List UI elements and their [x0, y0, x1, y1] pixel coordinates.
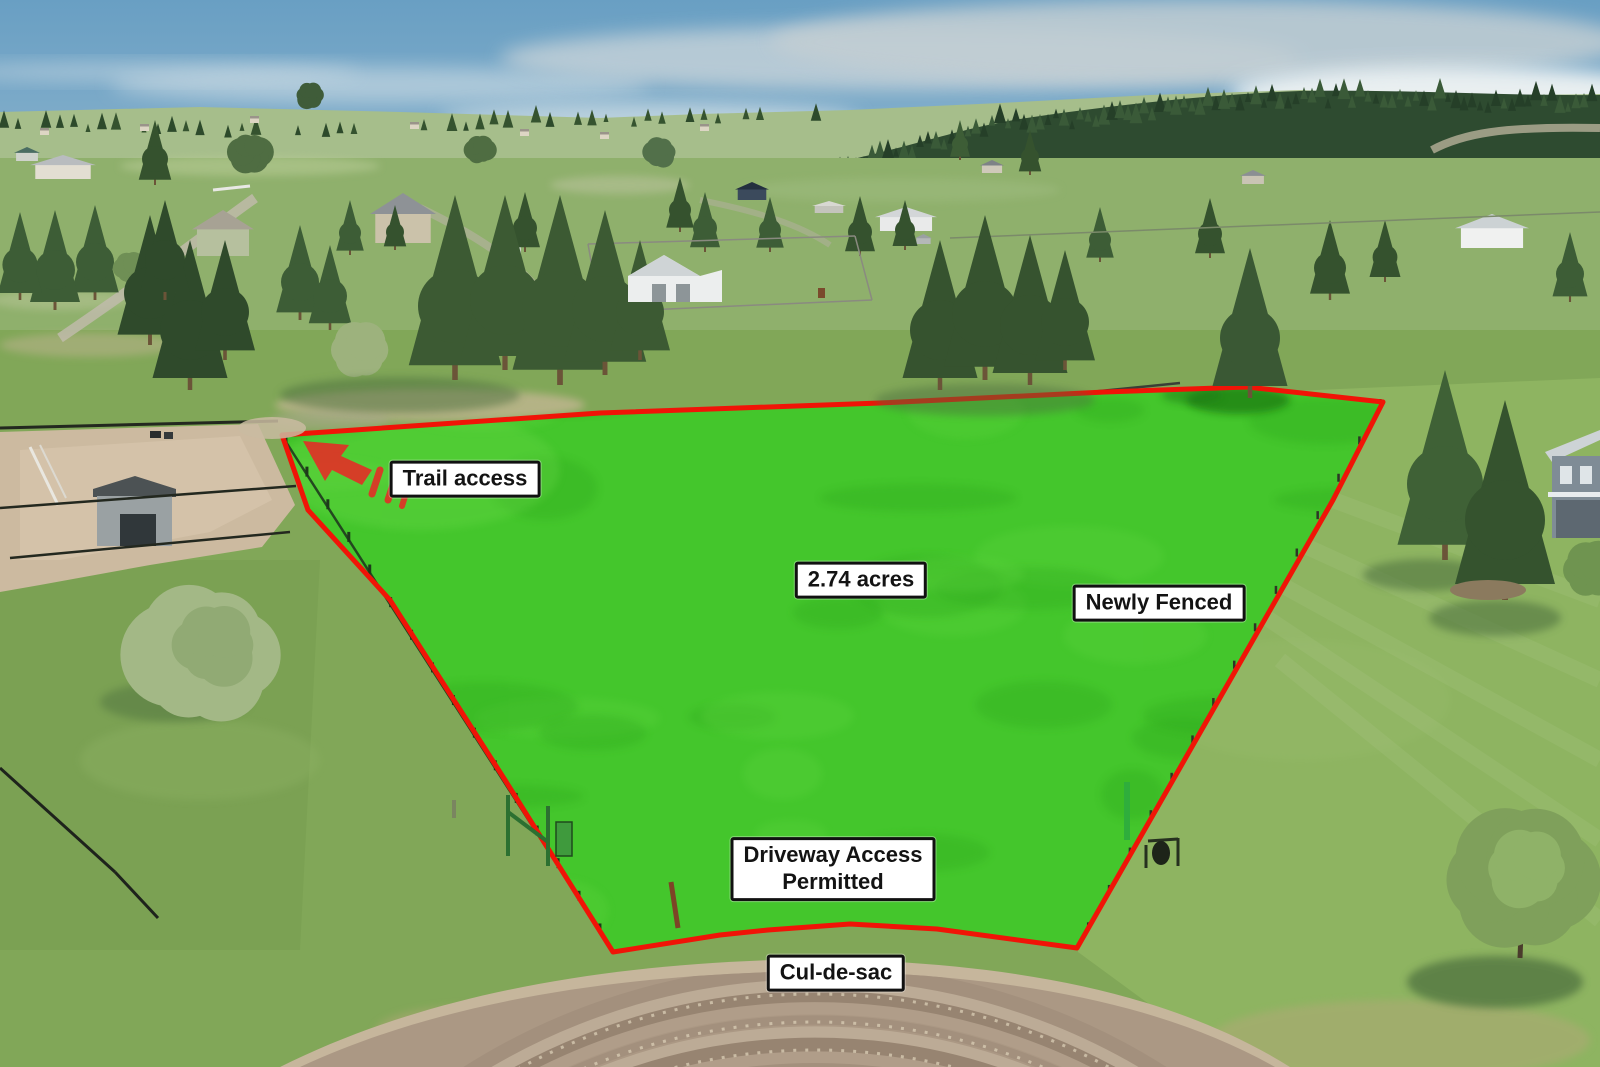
photo-canvas: [0, 0, 1600, 1067]
trail-access-label: Trail access: [390, 461, 541, 498]
cul-de-sac-label: Cul-de-sac: [767, 955, 905, 992]
aerial-property-photo: Trail access 2.74 acres Newly Fenced Dri…: [0, 0, 1600, 1067]
driveway-access-line2: Permitted: [744, 869, 923, 896]
driveway-access-line1: Driveway Access: [744, 842, 923, 869]
shed: [93, 476, 176, 546]
newly-fenced-label: Newly Fenced: [1073, 585, 1246, 622]
driveway-access-label: Driveway Access Permitted: [731, 837, 936, 901]
horse: [818, 288, 825, 298]
acreage-label: 2.74 acres: [795, 562, 927, 599]
